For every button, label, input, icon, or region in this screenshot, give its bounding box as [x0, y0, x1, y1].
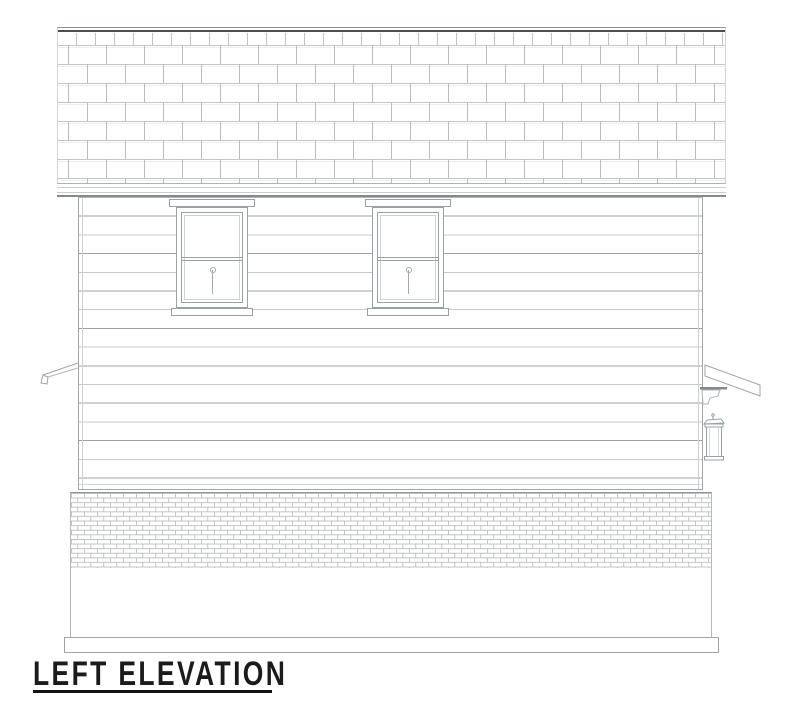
window-left-head-trim	[169, 199, 255, 207]
drawing-title-block: LEFT ELEVATION	[33, 651, 293, 695]
wall-lantern-icon	[700, 412, 730, 464]
title-underline	[33, 690, 272, 693]
roof-shingle-pattern	[58, 45, 725, 183]
roof-ridge-line	[58, 30, 725, 32]
window-left-sill	[171, 308, 253, 316]
window-right-head-trim	[365, 199, 451, 207]
drawing-title: LEFT ELEVATION	[33, 651, 287, 691]
window-left	[169, 199, 255, 316]
corner-trim-right	[698, 198, 699, 489]
foundation-wall	[70, 568, 712, 637]
window-right-frame	[372, 207, 444, 308]
roof-ridge-cap-row	[58, 33, 725, 45]
window-right-sill	[367, 308, 449, 316]
corner-trim-left	[82, 198, 83, 489]
window-right	[365, 199, 451, 316]
window-left-frame	[176, 207, 248, 308]
gutter-edge	[700, 387, 727, 390]
wall-bottom-line	[79, 484, 702, 485]
brick-pattern	[71, 493, 711, 568]
window-right-sash-lift	[408, 270, 409, 294]
window-left-sash-lift	[212, 270, 213, 294]
window-right-meeting-rail	[377, 257, 439, 261]
siding-wall	[78, 197, 703, 490]
brick-wainscot	[70, 492, 712, 568]
eave-fascia	[57, 183, 726, 197]
window-left-meeting-rail	[181, 257, 243, 261]
porch-eave-left	[30, 358, 85, 393]
porch-eave-right	[700, 360, 765, 410]
eave-bracket	[702, 390, 720, 404]
elevation-drawing: LEFT ELEVATION	[0, 0, 785, 707]
roof	[57, 27, 726, 183]
